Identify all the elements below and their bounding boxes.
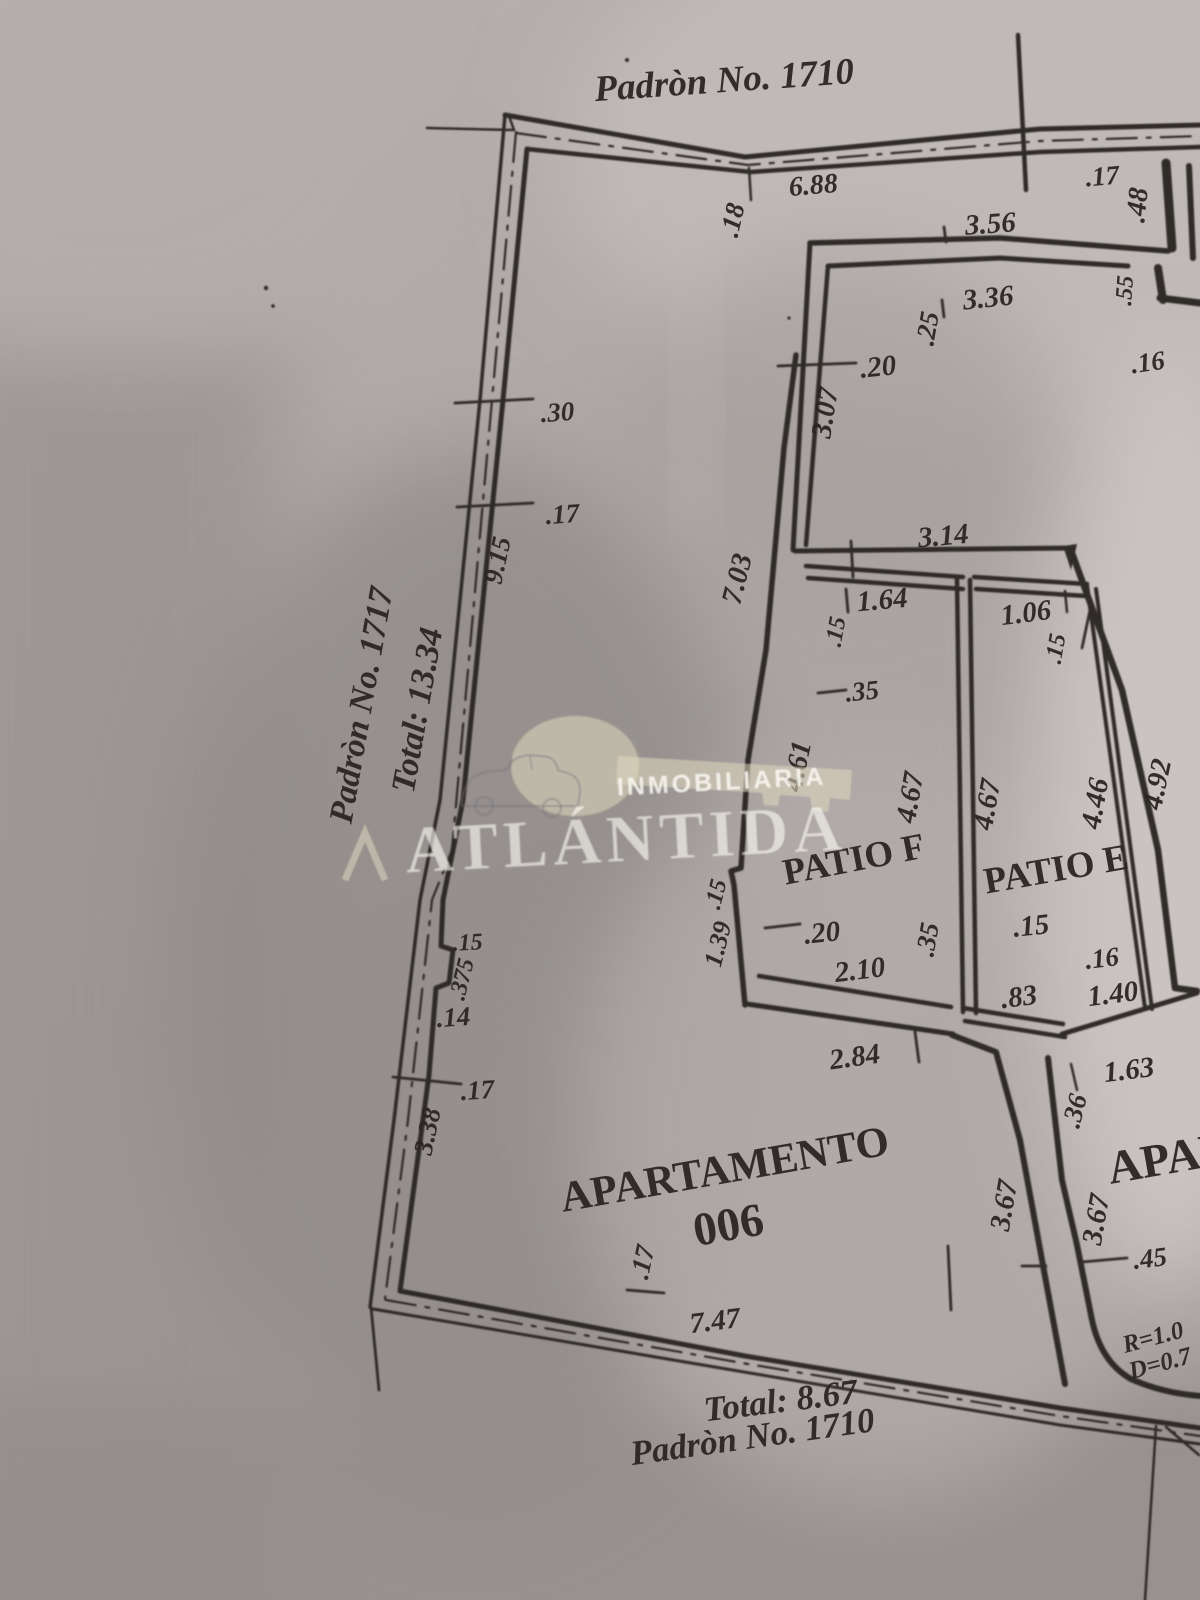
svg-text:.25: .25 <box>909 309 944 347</box>
svg-text:.35: .35 <box>844 674 881 707</box>
svg-text:1.06: 1.06 <box>999 594 1054 632</box>
svg-text:2.10: 2.10 <box>832 951 887 989</box>
svg-text:.83: .83 <box>999 979 1039 1015</box>
svg-text:.20: .20 <box>802 915 841 951</box>
svg-text:.17: .17 <box>459 1074 496 1106</box>
svg-text:3.56: 3.56 <box>963 206 1017 242</box>
svg-text:.48: .48 <box>1120 186 1154 224</box>
svg-text:1.64: 1.64 <box>856 582 909 618</box>
svg-text:1.63: 1.63 <box>1102 1051 1156 1089</box>
svg-text:.16: .16 <box>1129 345 1167 379</box>
svg-text:.16: .16 <box>1083 941 1121 975</box>
svg-text:.20: .20 <box>858 349 897 385</box>
svg-text:3.36: 3.36 <box>960 279 1015 316</box>
svg-text:.15: .15 <box>1011 908 1050 944</box>
svg-text:.17: .17 <box>1084 159 1122 192</box>
svg-text:.17: .17 <box>544 498 581 530</box>
svg-text:.15: .15 <box>452 929 483 957</box>
svg-text:7.47: 7.47 <box>688 1302 744 1340</box>
svg-text:.30: .30 <box>539 396 575 428</box>
svg-text:.14: .14 <box>435 1001 471 1033</box>
svg-text:6.88: 6.88 <box>788 168 840 203</box>
svg-text:1.40: 1.40 <box>1086 975 1140 1013</box>
svg-text:.15: .15 <box>821 615 852 649</box>
svg-text:.15: .15 <box>1041 632 1072 666</box>
svg-text:3.14: 3.14 <box>916 518 970 554</box>
svg-text:.45: .45 <box>1131 1241 1168 1275</box>
svg-text:.55: .55 <box>1111 275 1139 307</box>
svg-text:.35: .35 <box>909 920 944 958</box>
